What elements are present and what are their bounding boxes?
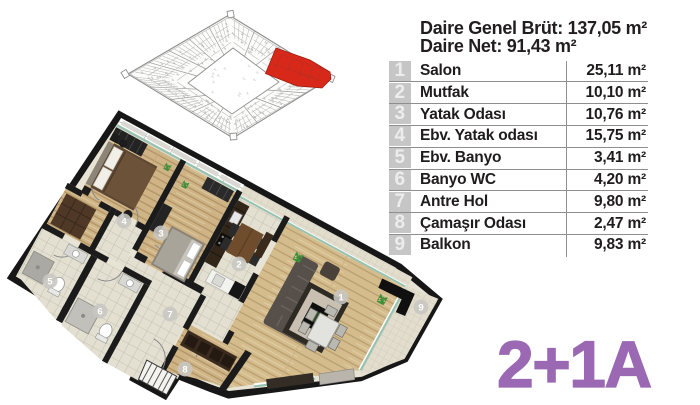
svg-text:8: 8 — [182, 365, 187, 376]
svg-text:4: 4 — [121, 217, 127, 228]
svg-text:2: 2 — [236, 260, 241, 271]
svg-text:7: 7 — [167, 310, 172, 321]
svg-text:9: 9 — [418, 303, 423, 314]
svg-text:3: 3 — [158, 229, 163, 240]
svg-text:6: 6 — [97, 307, 102, 318]
svg-text:1: 1 — [338, 293, 344, 304]
svg-text:5: 5 — [47, 277, 53, 288]
